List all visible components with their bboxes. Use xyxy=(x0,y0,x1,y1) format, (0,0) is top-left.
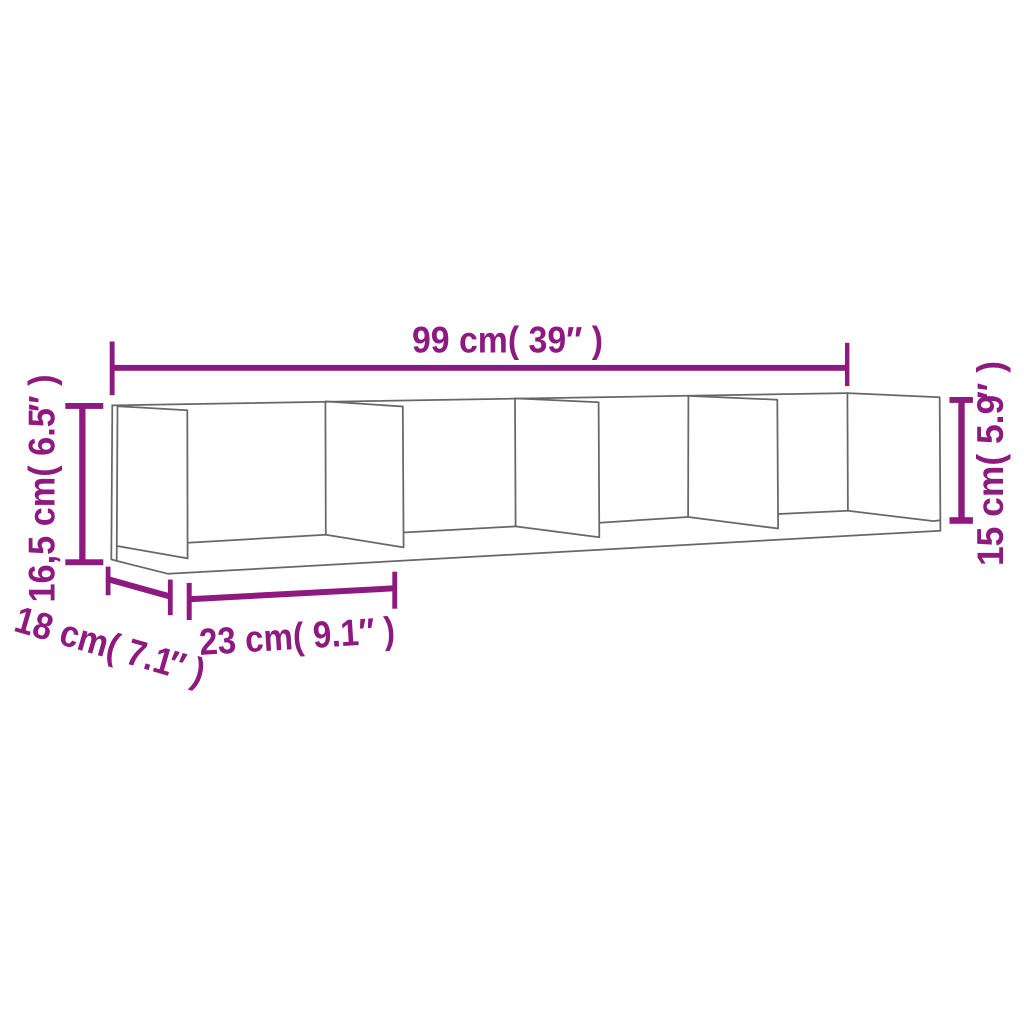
svg-text:18 cm( 7.1″ ): 18 cm( 7.1″ ) xyxy=(10,598,210,693)
svg-text:23 cm( 9.1″ ): 23 cm( 9.1″ ) xyxy=(198,609,396,663)
svg-text:15 cm( 5.9″ ): 15 cm( 5.9″ ) xyxy=(969,361,1011,566)
svg-text:99 cm( 39″ ): 99 cm( 39″ ) xyxy=(412,319,603,361)
svg-text:16,5 cm( 6.5″ ): 16,5 cm( 6.5″ ) xyxy=(21,375,63,603)
